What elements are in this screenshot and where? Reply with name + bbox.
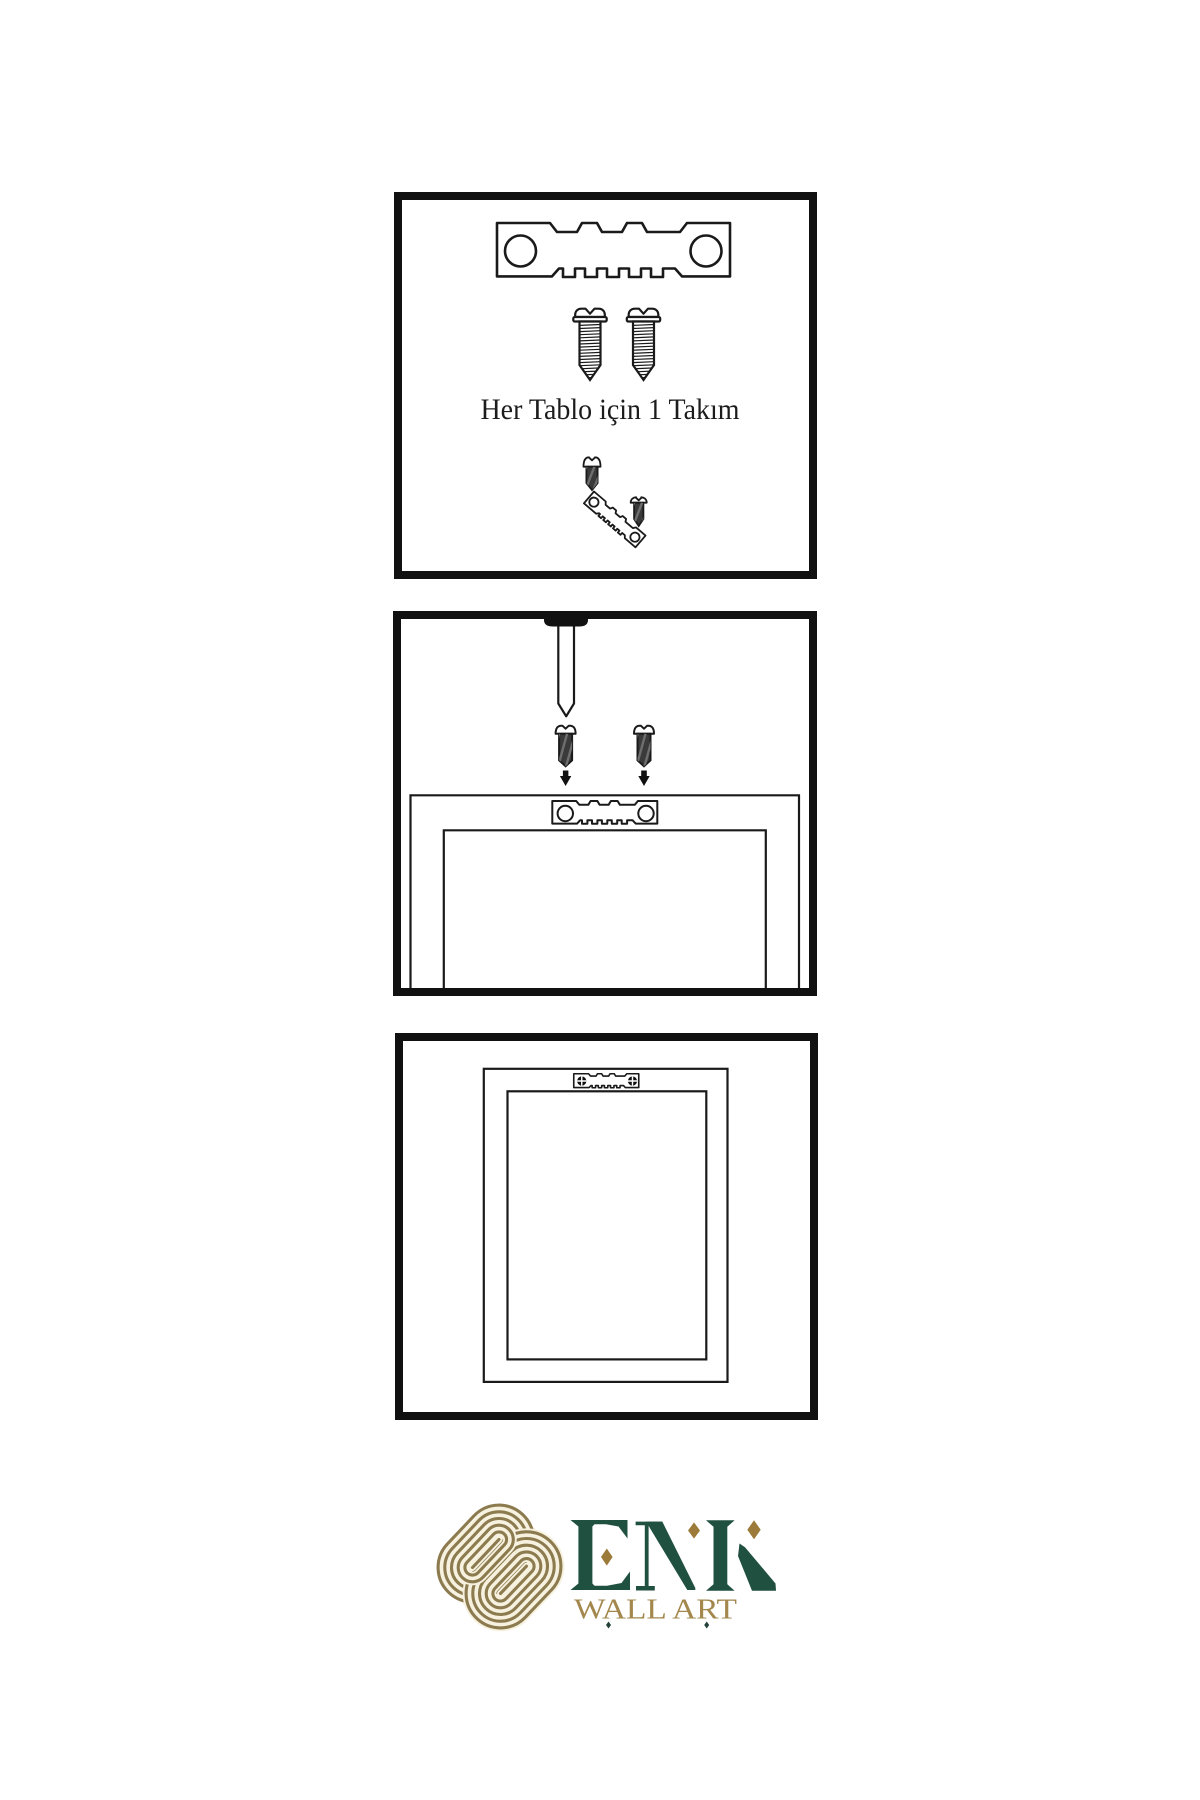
svg-text:Her Tablo için 1 Takım: Her Tablo için 1 Takım xyxy=(481,393,740,426)
svg-text:WALL ART: WALL ART xyxy=(574,1595,737,1626)
